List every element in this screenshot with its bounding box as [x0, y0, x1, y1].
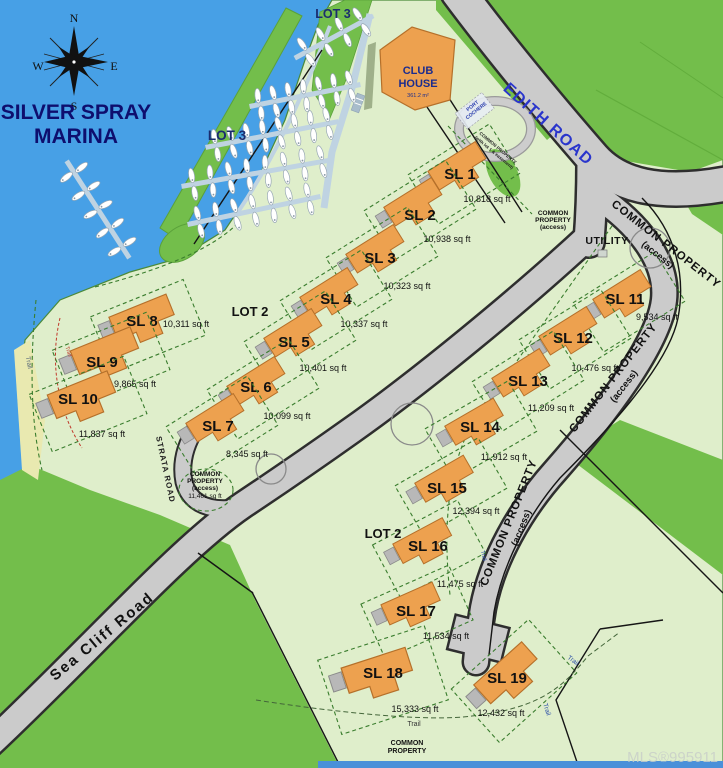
utility-label: UTILITY	[585, 235, 628, 247]
trail-label: Trail	[407, 721, 421, 728]
lot-area-label: 10,099 sq ft	[263, 411, 311, 421]
lot-label: SL 15	[427, 480, 467, 497]
lot-label: SL 12	[553, 330, 593, 347]
lot-label: SL 18	[363, 665, 403, 682]
lot-label: SL 4	[320, 291, 352, 308]
lot-label: SL 17	[396, 603, 436, 620]
svg-text:PROPERTY: PROPERTY	[535, 217, 571, 224]
mls-watermark: MLS®995911	[627, 749, 718, 766]
lot-area-label: 9,534 sq ft	[636, 312, 679, 322]
site-plan-map: SL 110,818 sq ftSL 210,938 sq ftSL 310,3…	[0, 0, 723, 768]
clubhouse-label: CLUB	[403, 65, 434, 77]
clubhouse-area-label: 361.2 m²	[407, 93, 429, 99]
svg-text:PROPERTY: PROPERTY	[187, 478, 223, 485]
svg-text:(access): (access)	[192, 485, 218, 492]
map-canvas: SL 110,818 sq ftSL 210,938 sq ftSL 310,3…	[0, 0, 723, 768]
svg-text:COMMON: COMMON	[538, 210, 569, 217]
lot-area-label: 11,534 sq ft	[423, 631, 470, 641]
lot-area-label: 15,333 sq ft	[391, 704, 439, 714]
svg-text:COMMON: COMMON	[190, 471, 221, 478]
compass-north-label: N	[70, 11, 79, 25]
lot-area-label: 9,865 sq ft	[114, 379, 157, 389]
lot-label: SL 16	[408, 538, 448, 555]
map-title-line2: MARINA	[34, 125, 118, 148]
svg-text:PROPERTY: PROPERTY	[388, 748, 427, 755]
lot2-west-label: LOT 2	[232, 304, 269, 319]
lot-label: SL 19	[487, 670, 527, 687]
lot-label: SL 14	[460, 419, 500, 436]
lot-label: SL 1	[444, 166, 475, 183]
lot-area-label: 11,475 sq ft	[437, 579, 484, 589]
lot-area-label: 10,401 sq ft	[299, 363, 347, 373]
lot-label: SL 13	[508, 373, 548, 390]
clubhouse-label: HOUSE	[398, 78, 437, 90]
lot-area-label: 10,818 sq ft	[463, 194, 511, 204]
lot-area-label: 8,345 sq ft	[226, 449, 269, 459]
boat-icon	[265, 173, 272, 188]
lot-area-label: 10,337 sq ft	[340, 319, 388, 329]
lot-area-label: 12,432 sq ft	[477, 708, 525, 718]
common-property-south-label: COMMON PROPERTY	[388, 740, 427, 755]
map-title-line1: SILVER SPRAY	[1, 101, 152, 124]
svg-text:(access): (access)	[540, 224, 566, 231]
lot-label: SL 8	[126, 313, 157, 330]
lot-area-label: 11,209 sq ft	[528, 403, 575, 413]
lot-label: SL 7	[202, 418, 233, 435]
lot-label: SL 6	[240, 379, 271, 396]
lot2-south-label: LOT 2	[365, 526, 402, 541]
lot-area-label: 10,938 sq ft	[423, 234, 471, 244]
lot-label: SL 9	[86, 354, 117, 371]
lot3-water-label: LOT 3	[208, 128, 247, 143]
boat-icon	[262, 155, 269, 170]
svg-text:COMMON: COMMON	[391, 740, 424, 747]
lot-area-label: 10,323 sq ft	[383, 281, 431, 291]
lot3-top-label: LOT 3	[315, 7, 350, 21]
lot-area-label: 10,311 sq ft	[163, 319, 210, 329]
lot-area-label: 11,837 sq ft	[79, 429, 126, 439]
compass-east-label: E	[110, 59, 117, 73]
lot-label: SL 3	[364, 250, 395, 267]
lot-area-label: 11,912 sq ft	[481, 452, 528, 462]
utility-box	[598, 250, 607, 257]
compass-west-label: W	[32, 59, 44, 73]
lot-label: SL 10	[58, 391, 98, 408]
svg-text:11,461 sq ft: 11,461 sq ft	[188, 493, 222, 500]
lot-area-label: 12,394 sq ft	[452, 506, 500, 516]
lot-label: SL 11	[606, 291, 645, 308]
